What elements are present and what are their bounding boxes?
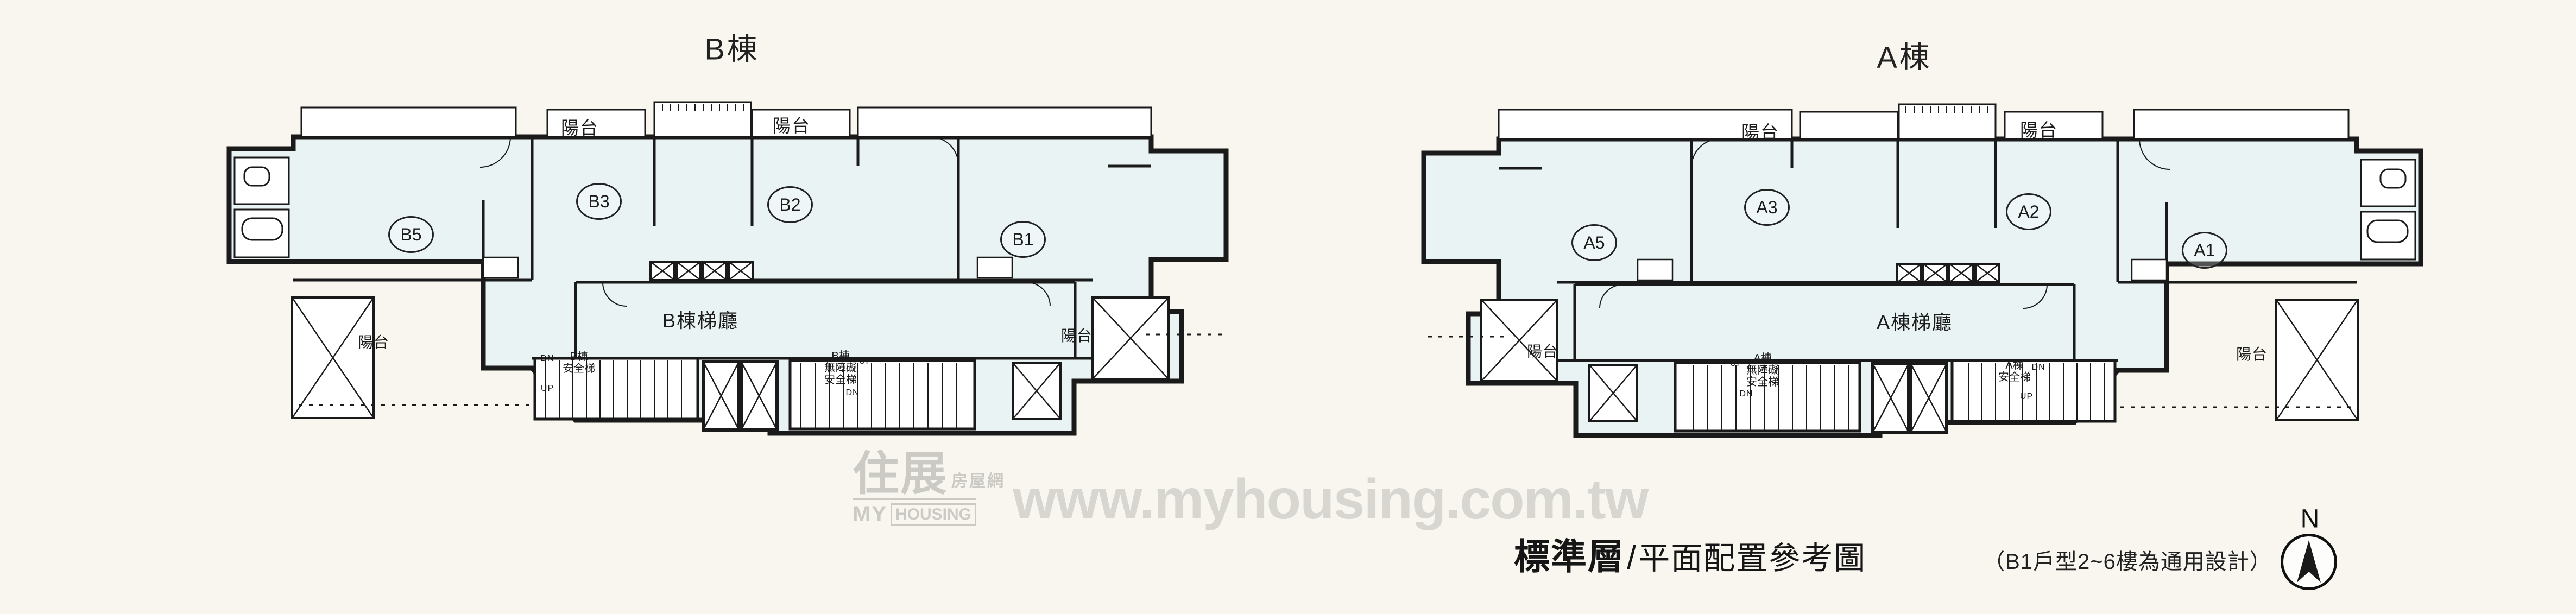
building-b-title: B棟 bbox=[704, 25, 759, 69]
north-label: N bbox=[2301, 504, 2320, 534]
sheet-caption: 標準層 / 平面配置參考圖 bbox=[1514, 528, 1866, 580]
unit-label-b1: B1 bbox=[1000, 221, 1046, 258]
stair-label: A棟無障礙安全梯 bbox=[1746, 352, 1779, 388]
balcony-label: 陽台 bbox=[358, 331, 389, 352]
floorplan-sheet: B棟B5B3B2B1陽台陽台陽台陽台B棟梯廳B棟安全梯DNUPB棟無障礙安全梯U… bbox=[0, 0, 2576, 614]
balcony-label: 陽台 bbox=[561, 113, 599, 140]
unit-label-b2: B2 bbox=[767, 186, 813, 223]
lobby-label-b: B棟梯廳 bbox=[662, 305, 738, 333]
stair-direction-up: UP bbox=[2020, 392, 2033, 402]
caption-separator: / bbox=[1627, 539, 1636, 577]
caption-note: （B1戶型2~6樓為通用設計） bbox=[1983, 544, 2272, 575]
logo-latin-my: MY bbox=[853, 502, 887, 527]
north-arrow-icon bbox=[2281, 534, 2337, 590]
stair-direction-dn: DN bbox=[845, 388, 859, 398]
unit-label-b5: B5 bbox=[388, 216, 434, 253]
building-a-title: A棟 bbox=[1877, 33, 1931, 77]
logo-cjk-main: 住展 bbox=[853, 452, 948, 496]
unit-label-a5: A5 bbox=[1571, 224, 1617, 261]
stair-direction-dn: DN bbox=[540, 354, 554, 364]
balcony-label: 陽台 bbox=[773, 111, 811, 137]
stair-direction-up: UP bbox=[1730, 359, 1743, 369]
unit-label-a2: A2 bbox=[2006, 193, 2051, 230]
stair-label: B棟安全梯 bbox=[563, 351, 595, 375]
unit-label-b3: B3 bbox=[576, 183, 622, 220]
stair-direction-dn: DN bbox=[1739, 389, 1753, 399]
lobby-label-a: A棟梯廳 bbox=[1877, 307, 1953, 335]
caption-subtitle: 平面配置參考圖 bbox=[1638, 533, 1866, 578]
myhousing-logo: 住展 房屋網 MY HOUSING bbox=[853, 452, 1005, 527]
unit-label-a1: A1 bbox=[2182, 232, 2227, 269]
stair-direction-up: UP bbox=[859, 357, 872, 366]
stair-direction-up: UP bbox=[541, 384, 554, 394]
watermark: 住展 房屋網 MY HOUSING www.myhousing.com.tw bbox=[853, 452, 1648, 532]
logo-latin-housing: HOUSING bbox=[891, 503, 976, 526]
balcony-label: 陽台 bbox=[1061, 324, 1093, 346]
balcony-label: 陽台 bbox=[1741, 118, 1779, 144]
watermark-url: www.myhousing.com.tw bbox=[1013, 467, 1648, 532]
stair-label: A棟安全梯 bbox=[1998, 359, 2031, 383]
stair-direction-dn: DN bbox=[2031, 363, 2045, 372]
unit-label-a3: A3 bbox=[1744, 189, 1790, 226]
logo-cjk-sub: 房屋網 bbox=[951, 467, 1005, 491]
balcony-label: 陽台 bbox=[2236, 343, 2268, 364]
stair-label: B棟無障礙安全梯 bbox=[824, 350, 857, 386]
caption-title: 標準層 bbox=[1514, 528, 1625, 580]
balcony-label: 陽台 bbox=[1527, 340, 1558, 362]
balcony-label: 陽台 bbox=[2020, 116, 2058, 142]
